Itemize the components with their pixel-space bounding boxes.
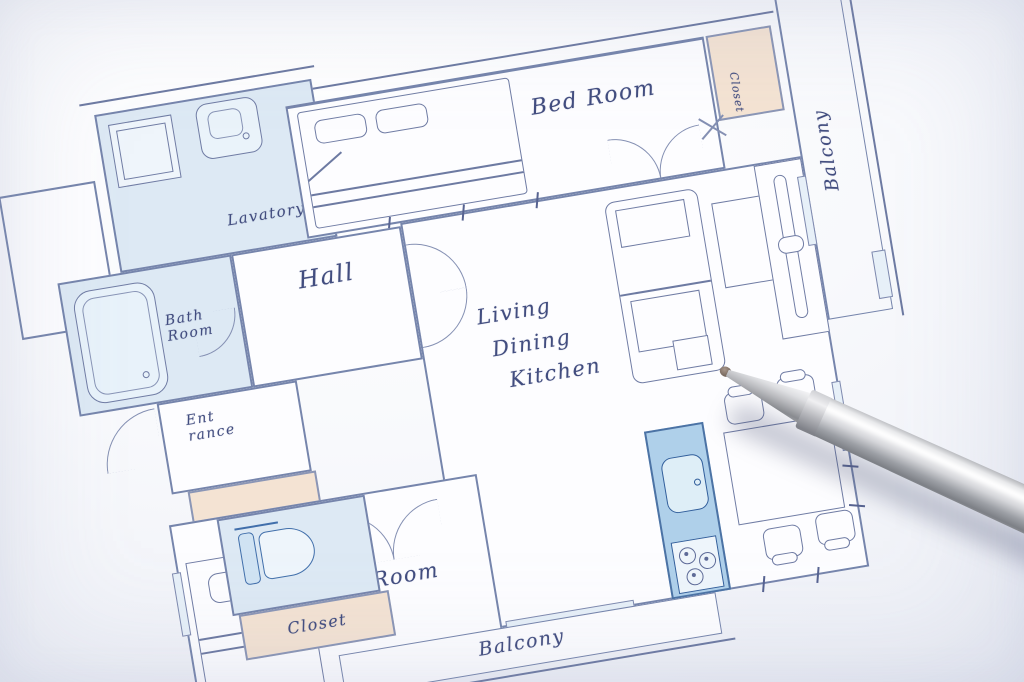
closet-top-label: Closet	[727, 71, 747, 114]
floor-plan: Lavatory Bed Room Closet Balcony	[0, 0, 998, 682]
balcony-bottom-label: Balcony	[477, 625, 566, 661]
closet-mid-label: Closet	[286, 609, 348, 638]
closet-top: Closet	[705, 25, 784, 121]
chair-icon	[762, 523, 805, 561]
room-hall	[231, 226, 423, 388]
kitchen-sink-icon	[660, 453, 711, 515]
chair-icon	[814, 509, 857, 547]
photo-of-floor-plan: Lavatory Bed Room Closet Balcony	[0, 0, 1024, 682]
washing-machine-icon	[108, 114, 182, 188]
door-arc-entrance	[98, 408, 164, 474]
lavatory-sink-icon	[194, 95, 264, 160]
ldk-label: Living Dining Kitchen	[474, 283, 604, 401]
stove-icon	[671, 535, 725, 594]
